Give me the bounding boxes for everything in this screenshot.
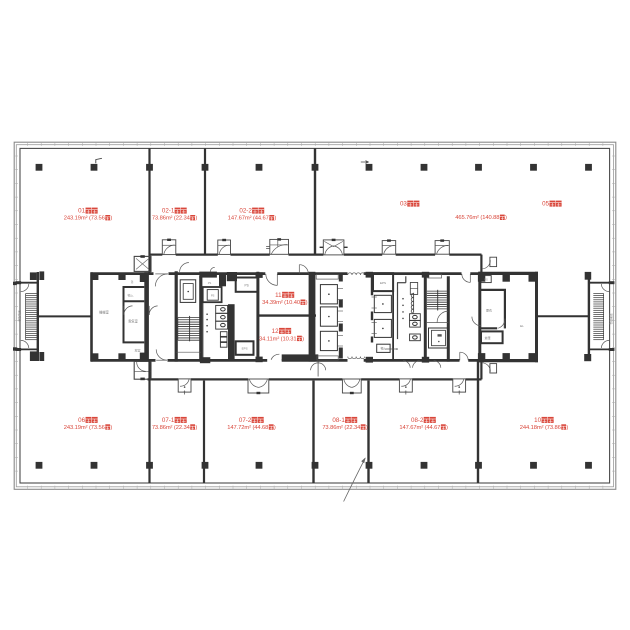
svg-text:08-1: 08-1: [332, 417, 345, 424]
svg-text:PS: PS: [208, 281, 212, 285]
svg-text:): ): [274, 216, 276, 222]
svg-text:物入: 物入: [127, 293, 133, 298]
svg-text:物入: 物入: [381, 347, 387, 351]
svg-text:湯: 湯: [131, 280, 134, 284]
svg-text:73.86m² (22.34: 73.86m² (22.34: [322, 425, 361, 431]
svg-text:EL: EL: [520, 324, 524, 328]
svg-text:34.39m² (10.40: 34.39m² (10.40: [262, 300, 300, 306]
svg-text:機械室: 機械室: [99, 310, 109, 315]
svg-text:05: 05: [542, 201, 549, 208]
svg-text:): ): [302, 336, 304, 342]
svg-text:EPS: EPS: [380, 281, 386, 285]
svg-text:73.86m² (22.34: 73.86m² (22.34: [152, 425, 191, 431]
svg-text:): ): [505, 215, 507, 221]
svg-text:02-1: 02-1: [162, 208, 175, 215]
svg-text:避難階段: 避難階段: [18, 310, 22, 321]
svg-text:06: 06: [78, 417, 85, 424]
svg-text:03: 03: [400, 201, 407, 208]
svg-text:避難階段: 避難階段: [609, 313, 613, 324]
svg-text:10: 10: [534, 417, 541, 424]
svg-text:): ): [566, 425, 568, 431]
svg-text:): ): [274, 425, 276, 431]
svg-text:34.11m² (10.31: 34.11m² (10.31: [259, 336, 296, 342]
svg-text:147.67m² (44.67: 147.67m² (44.67: [399, 425, 440, 431]
svg-text:控室: 控室: [134, 348, 140, 353]
svg-text:02-2: 02-2: [239, 208, 252, 215]
svg-text:): ): [195, 216, 197, 222]
svg-text:): ): [110, 216, 112, 222]
svg-text:243.19m² (73.56: 243.19m² (73.56: [64, 425, 105, 431]
svg-text:465.76m² (140.88: 465.76m² (140.88: [455, 215, 499, 221]
svg-text:07-1: 07-1: [162, 417, 175, 424]
svg-text:): ): [195, 425, 197, 431]
svg-text:12: 12: [272, 328, 279, 335]
svg-text:73.86m² (22.34: 73.86m² (22.34: [152, 216, 191, 222]
svg-text:): ): [446, 425, 448, 431]
svg-text:PS: PS: [484, 278, 488, 282]
svg-text:): ): [110, 425, 112, 431]
svg-text:PS: PS: [244, 284, 248, 288]
svg-text:244.18m² (73.86: 244.18m² (73.86: [520, 425, 561, 431]
svg-text:): ): [306, 300, 308, 306]
svg-text:08-2: 08-2: [411, 417, 424, 424]
svg-text:01: 01: [78, 208, 85, 215]
svg-text:): ): [366, 425, 368, 431]
svg-text:EPS: EPS: [242, 347, 248, 351]
svg-text:147.67m² (44.67: 147.67m² (44.67: [228, 216, 269, 222]
svg-text:更衣: 更衣: [486, 308, 492, 313]
svg-text:11: 11: [275, 292, 282, 299]
svg-text:倉庫: 倉庫: [484, 335, 490, 340]
svg-text:07-2: 07-2: [239, 417, 252, 424]
svg-text:147.72m² (44.68: 147.72m² (44.68: [227, 425, 268, 431]
svg-text:PS: PS: [211, 293, 215, 297]
svg-text:243.19m² (73.56: 243.19m² (73.56: [64, 216, 105, 222]
svg-text:電気室: 電気室: [128, 319, 138, 324]
